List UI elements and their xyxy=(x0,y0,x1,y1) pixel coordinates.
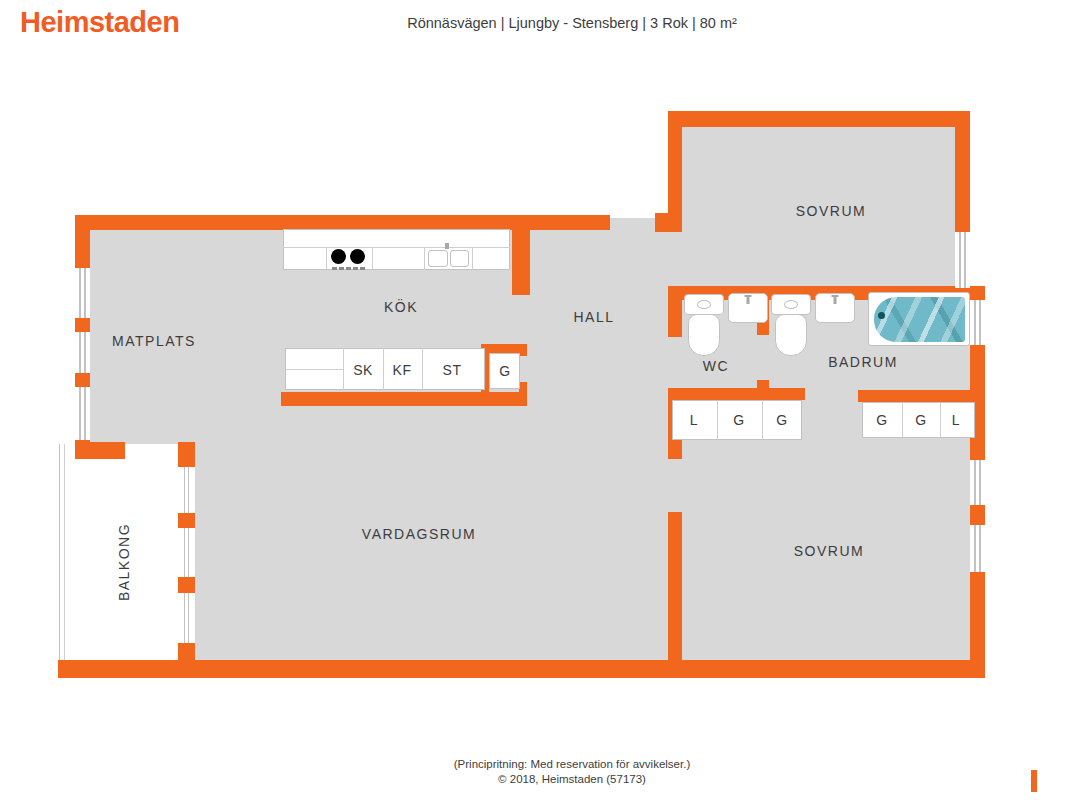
wall xyxy=(970,505,985,525)
balcony-window xyxy=(181,528,192,577)
cabinet-divider xyxy=(902,402,903,438)
stove-burner xyxy=(350,249,365,264)
cabinet-label-g: G xyxy=(733,412,744,428)
cabinet-label-g: G xyxy=(499,363,510,379)
cabinet-label-g: G xyxy=(776,412,787,428)
cabinet-divider xyxy=(286,369,343,370)
wall xyxy=(668,388,805,400)
sink-tap xyxy=(834,296,837,304)
wall xyxy=(519,344,527,356)
cabinet-divider xyxy=(383,348,384,390)
cabinet-label-l: L xyxy=(952,412,960,428)
toilet-tank xyxy=(684,294,724,315)
room-label-balkong: BALKONG xyxy=(116,523,132,601)
cabinet-label-st: ST xyxy=(443,362,462,378)
disclaimer-text: (Principritning: Med reservation för avv… xyxy=(372,758,772,770)
wall xyxy=(178,577,195,593)
window xyxy=(970,525,985,572)
window xyxy=(955,232,970,288)
counter-divider xyxy=(372,247,373,270)
floor-plan-page: Heimstaden Rönnäsvägen | Ljungby - Stens… xyxy=(0,0,1067,800)
wall xyxy=(668,111,970,127)
floor-right-block xyxy=(668,300,970,662)
stove-dash xyxy=(339,267,344,270)
plan-title: Rönnäsvägen | Ljungby - Stensberg | 3 Ro… xyxy=(372,15,772,31)
cabinet-divider xyxy=(717,400,718,440)
stove-dash xyxy=(346,267,351,270)
page-marker xyxy=(1031,770,1037,792)
bathtub xyxy=(868,292,970,346)
wall xyxy=(668,512,682,662)
floor-vardagsrum xyxy=(195,460,668,662)
window xyxy=(970,300,985,345)
wall xyxy=(858,390,985,402)
bathtub-water xyxy=(874,297,965,342)
kitchen-sink-tap xyxy=(445,243,449,249)
wall xyxy=(75,373,90,387)
counter-divider xyxy=(283,247,510,248)
wall xyxy=(75,442,125,459)
stove-dash xyxy=(353,267,358,270)
kitchen-sink-basin xyxy=(450,250,469,267)
kitchen-sink-basin xyxy=(428,250,448,267)
room-label-sovrum-bottom: SOVRUM xyxy=(794,543,864,559)
room-label-sovrum-top: SOVRUM xyxy=(796,203,866,219)
sink-tap xyxy=(747,296,750,304)
wall xyxy=(655,213,682,232)
counter-divider xyxy=(326,247,327,270)
wall xyxy=(512,215,530,295)
toilet-button xyxy=(697,300,711,309)
toilet-bowl xyxy=(688,314,720,356)
cabinet-label-sk: SK xyxy=(353,362,373,378)
room-label-vardagsrum: VARDAGSRUM xyxy=(362,526,476,542)
copyright-text: © 2018, Heimstaden (57173) xyxy=(372,773,772,785)
wall xyxy=(281,392,527,406)
cabinet-divider xyxy=(940,402,941,438)
floor-sovrum-top-door xyxy=(668,232,682,286)
bathroom-sink xyxy=(815,293,855,323)
cabinet-label-g: G xyxy=(876,412,887,428)
room-label-kok: KÖK xyxy=(384,299,418,315)
room-label-wc: WC xyxy=(703,358,729,374)
stove-dash xyxy=(360,267,365,270)
wall xyxy=(519,382,527,394)
kitchen-counter xyxy=(283,229,510,270)
wall xyxy=(178,513,195,528)
toilet-bowl xyxy=(775,314,807,356)
wall xyxy=(757,380,769,390)
stove-dash xyxy=(332,267,337,270)
heimstaden-logo: Heimstaden xyxy=(20,6,179,39)
window xyxy=(970,460,985,505)
room-label-matplats: MATPLATS xyxy=(112,333,196,349)
cabinet-divider xyxy=(762,400,763,440)
balcony-window xyxy=(181,467,192,513)
wall xyxy=(58,660,985,678)
wall xyxy=(178,643,195,662)
cabinet-divider xyxy=(422,348,423,390)
wall xyxy=(75,215,90,268)
wall xyxy=(75,318,90,332)
balcony-window xyxy=(181,593,192,643)
cabinet-label-l: L xyxy=(690,412,698,428)
toilet-tank xyxy=(771,294,811,315)
wall xyxy=(955,111,970,232)
room-label-hall: HALL xyxy=(573,309,614,325)
wall xyxy=(668,286,682,337)
cabinet-label-kf: KF xyxy=(393,362,412,378)
window xyxy=(75,332,90,373)
counter-divider xyxy=(424,247,425,270)
window xyxy=(75,387,90,440)
counter-divider xyxy=(472,247,473,270)
wall xyxy=(178,442,195,467)
toilet-button xyxy=(784,300,798,309)
bathtub-drain xyxy=(878,312,885,319)
room-label-badrum: BADRUM xyxy=(828,354,898,370)
stove-burner xyxy=(331,249,346,264)
balcony-edge-line xyxy=(64,444,65,660)
cabinet-divider xyxy=(343,348,344,390)
bathroom-sink xyxy=(728,293,768,323)
cabinet-label-g: G xyxy=(915,412,926,428)
window xyxy=(75,268,90,318)
